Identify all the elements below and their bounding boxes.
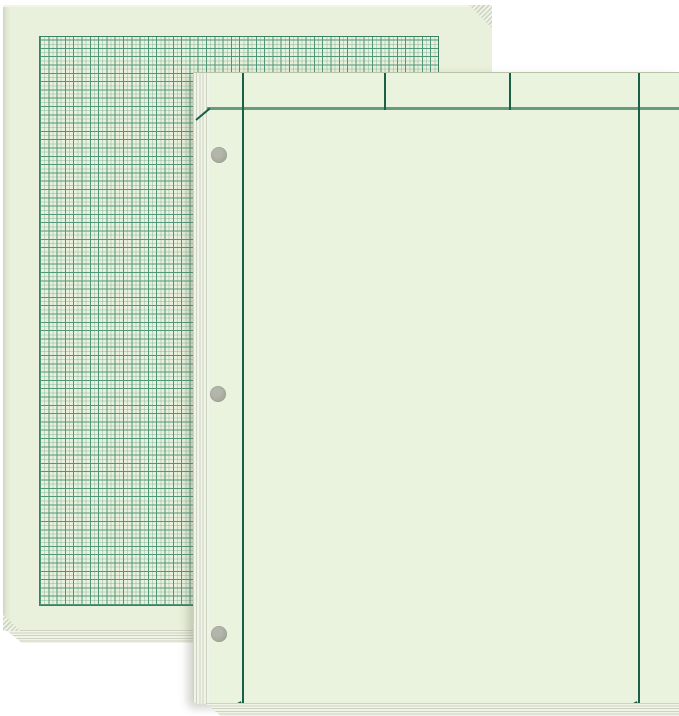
- right-margin-rule: [638, 73, 640, 704]
- header-divider-2: [509, 73, 511, 110]
- hole-punch: [210, 386, 226, 402]
- front-pad-bottom-sheet-stack-edge: [205, 703, 679, 716]
- product-photo-scene: [0, 0, 679, 716]
- left-margin-rule: [242, 73, 244, 704]
- hole-punch: [211, 147, 227, 163]
- hole-punch: [211, 626, 227, 642]
- front-pad-left-sheet-stack-edge: [193, 73, 209, 704]
- engineering-pad: [193, 72, 679, 704]
- header-divider-1: [384, 73, 386, 110]
- header-rule-line: [207, 107, 679, 110]
